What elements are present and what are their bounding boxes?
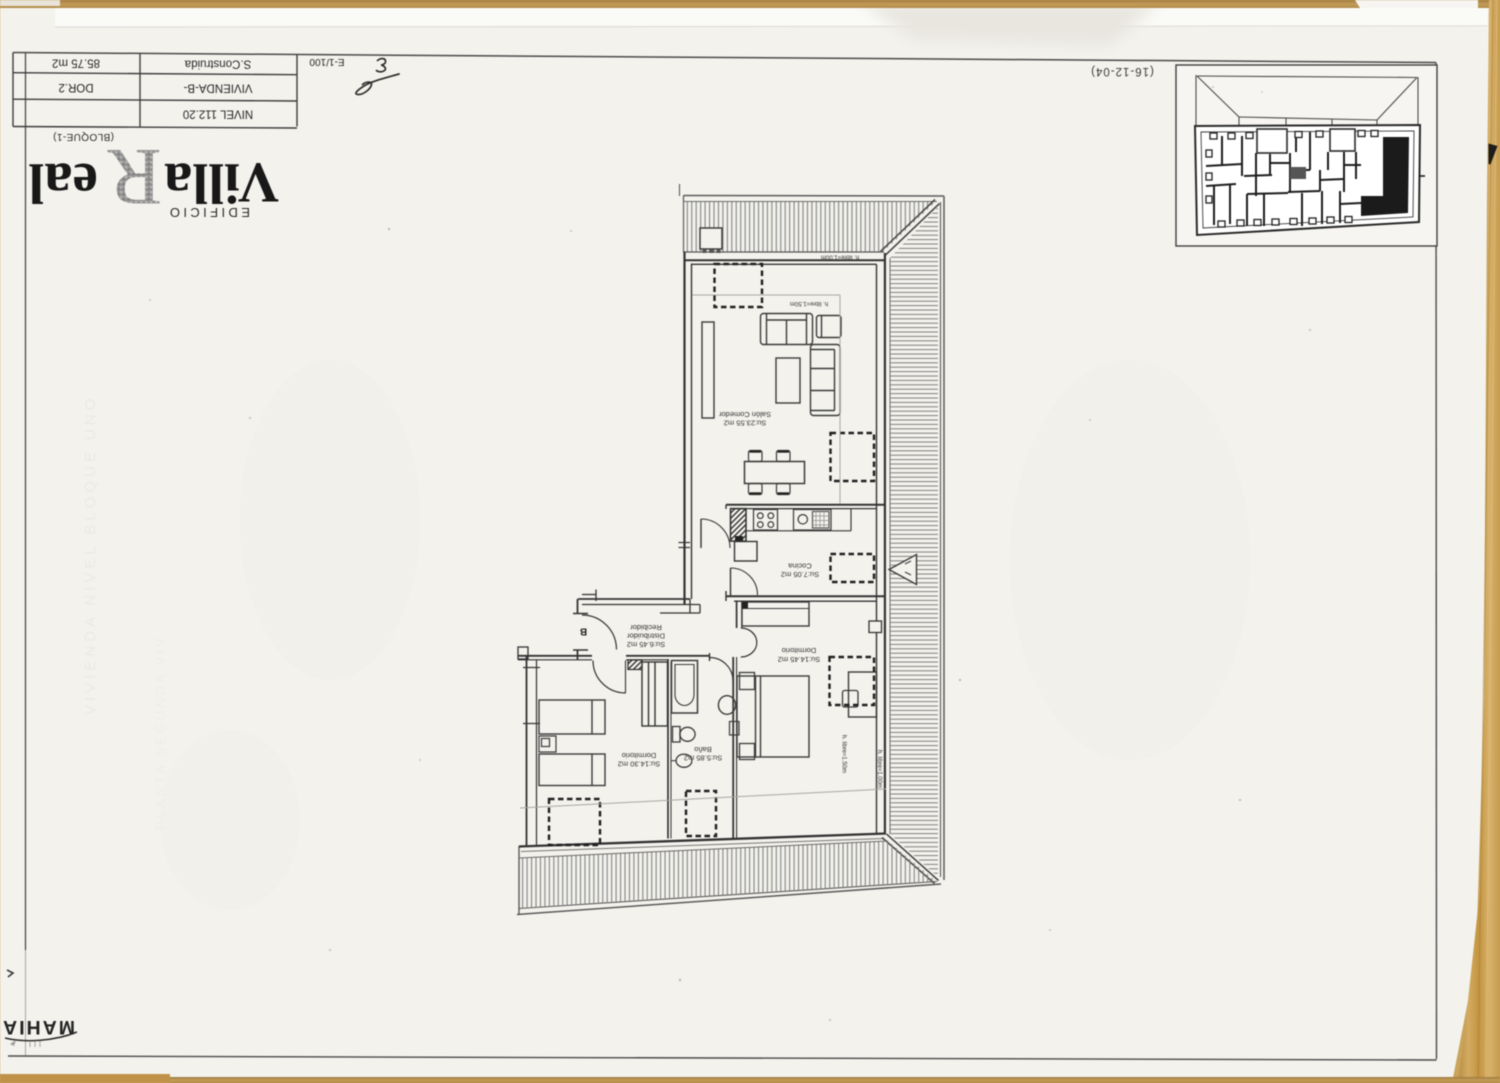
svg-text:Distribuidor: Distribuidor [627, 632, 665, 641]
svg-text:(16-12-04): (16-12-04) [1090, 65, 1154, 77]
svg-text:Dormitorio: Dormitorio [782, 646, 817, 655]
svg-text:eal: eal [28, 151, 98, 214]
svg-text:R: R [107, 132, 162, 223]
svg-text:Su:23.55 m2: Su:23.55 m2 [724, 419, 767, 428]
svg-text:Su:5.85 m2: Su:5.85 m2 [684, 754, 722, 763]
svg-text:Dormitorio: Dormitorio [622, 751, 657, 760]
svg-text:MAHIA: MAHIA [1, 1016, 75, 1038]
svg-text:VIVIENDA-B-: VIVIENDA-B- [183, 82, 252, 94]
svg-text:Su:7.05 m2: Su:7.05 m2 [781, 570, 819, 579]
svg-text:Cocina: Cocina [788, 562, 812, 571]
svg-text:h. libre=1.00m: h. libre=1.00m [821, 254, 859, 260]
svg-text:h. libre=1.50m: h. libre=1.50m [790, 300, 828, 306]
svg-text:Su:14.30 m2: Su:14.30 m2 [618, 760, 661, 769]
svg-text:DOR.2: DOR.2 [58, 81, 93, 93]
svg-text:E-1/100: E-1/100 [309, 56, 344, 67]
svg-text:h. libre=1.00m: h. libre=1.00m [876, 750, 882, 788]
svg-text:VIVIENDA NIVEL BLOQUE UNO: VIVIENDA NIVEL BLOQUE UNO [82, 395, 99, 715]
svg-text:NIVEL 112.20: NIVEL 112.20 [183, 108, 253, 120]
svg-text:Recibidor: Recibidor [630, 623, 662, 632]
svg-text:h. libre=1.50m: h. libre=1.50m [841, 735, 847, 773]
svg-text:(BLOQUE-1): (BLOQUE-1) [53, 131, 114, 142]
svg-text:Villa: Villa [164, 151, 279, 214]
svg-text:S.Construida: S.Construida [184, 58, 251, 70]
svg-text:Su:6.45 m2: Su:6.45 m2 [627, 640, 665, 649]
svg-text:EDIFICIO: EDIFICIO [166, 205, 250, 220]
svg-text:85.75 m2: 85.75 m2 [52, 57, 100, 69]
svg-text:Su:14.45 m2: Su:14.45 m2 [778, 655, 821, 664]
svg-text:Baño: Baño [694, 745, 712, 754]
svg-text:B: B [580, 626, 587, 637]
svg-text:Salón Comedor: Salón Comedor [718, 410, 771, 419]
